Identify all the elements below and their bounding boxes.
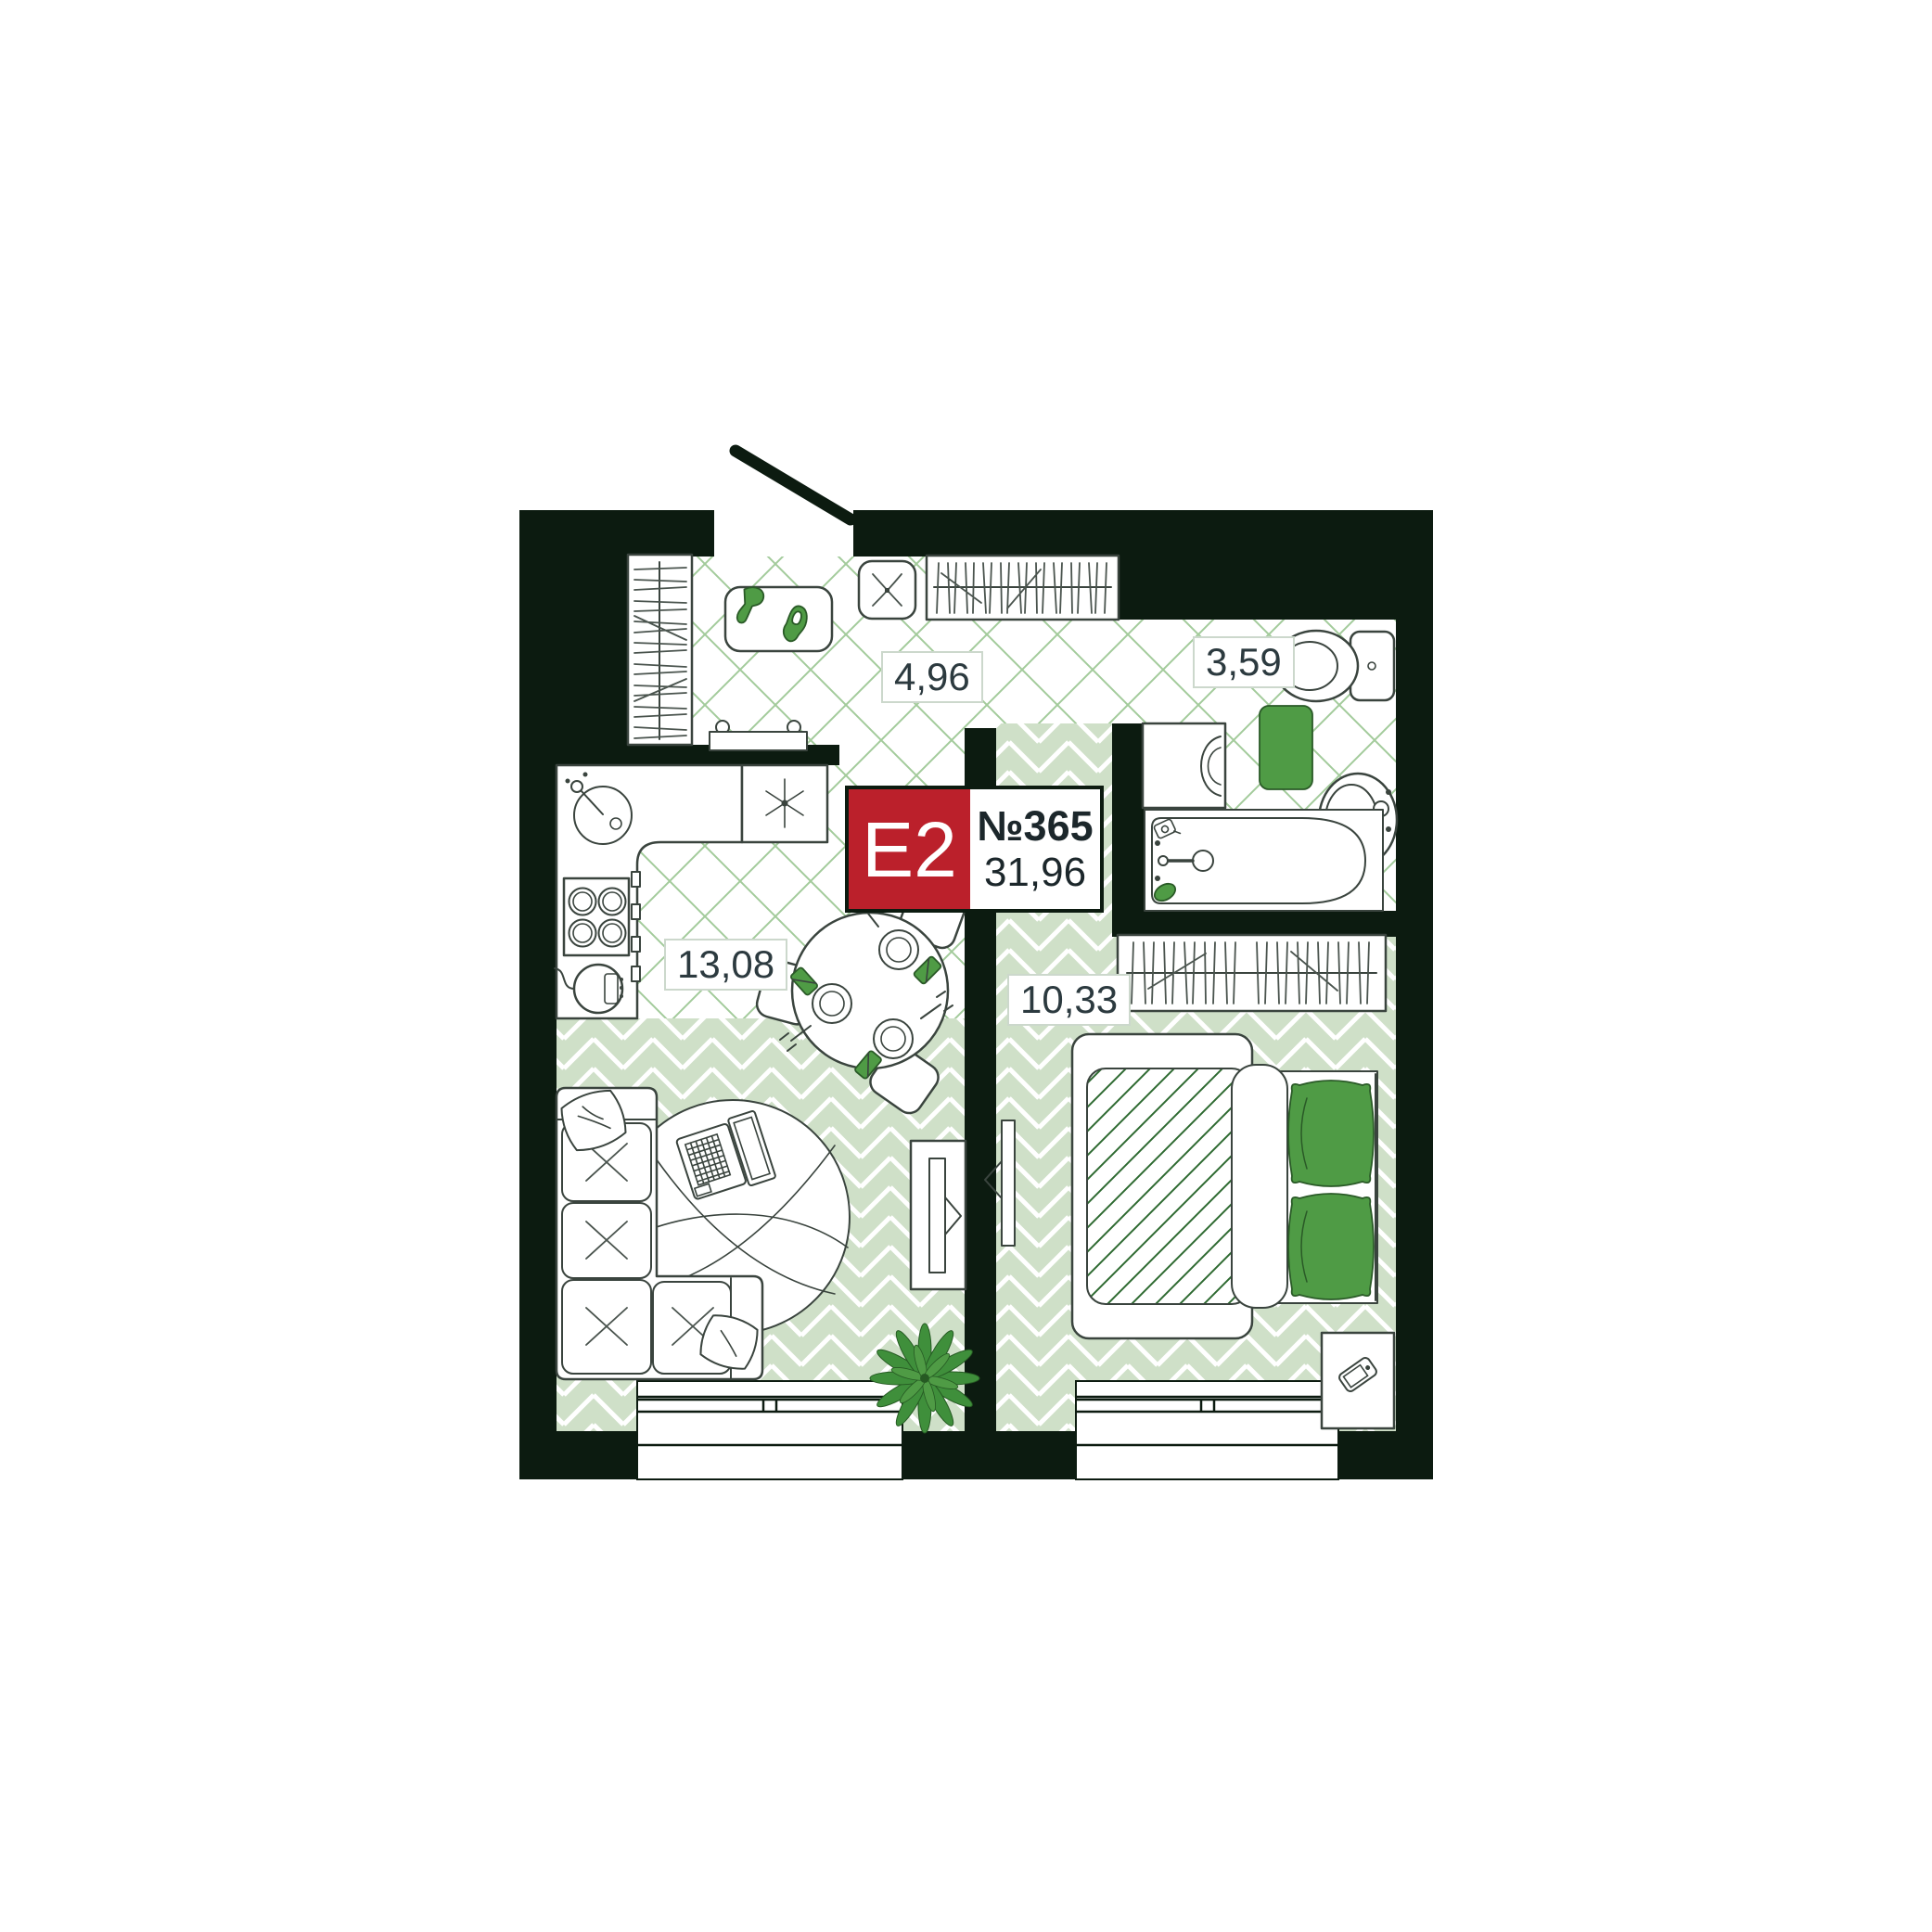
bed-pillow [1288,1081,1374,1186]
bed-icon [1072,1034,1377,1338]
plan-type-badge: Е2 [849,789,970,909]
dining-table-icon [792,913,948,1068]
entrance-door-icon [736,451,851,519]
hallway-area-label: 4,96 [881,651,983,703]
floor-plan-drawing [0,0,1932,1932]
bed-pillow [1288,1194,1374,1299]
bedroom-area-label: 10,33 [1007,974,1131,1026]
kitchen-living-area-label: 13,08 [664,939,787,991]
washing-machine-icon [1143,723,1225,808]
unit-total-area: 31,96 [984,850,1086,895]
bedroom-wardrobe-icon [1118,935,1386,1011]
shoe-mat-icon [725,585,832,651]
bedroom-window [1076,1381,1338,1479]
bath-mat-icon [1260,706,1312,789]
hallway-wardrobe-icon [628,555,692,745]
hallway-top-wardrobe-icon [927,556,1119,620]
living-room-window [637,1381,902,1479]
tv-stand-icon [911,1141,966,1289]
stove-icon [564,878,629,955]
nightstand-icon [1322,1333,1394,1428]
unit-info: №365 31,96 [970,789,1100,909]
bathroom-area-label: 3,59 [1193,636,1295,688]
fridge-icon [742,765,827,842]
bathtub-icon [1145,810,1383,911]
floor-plan: 4,96 3,59 13,08 10,33 Е2 №365 31,96 [0,0,1932,1932]
pouf-icon [859,561,915,619]
unit-number: №365 [977,803,1093,850]
unit-badge: Е2 №365 31,96 [845,786,1104,913]
